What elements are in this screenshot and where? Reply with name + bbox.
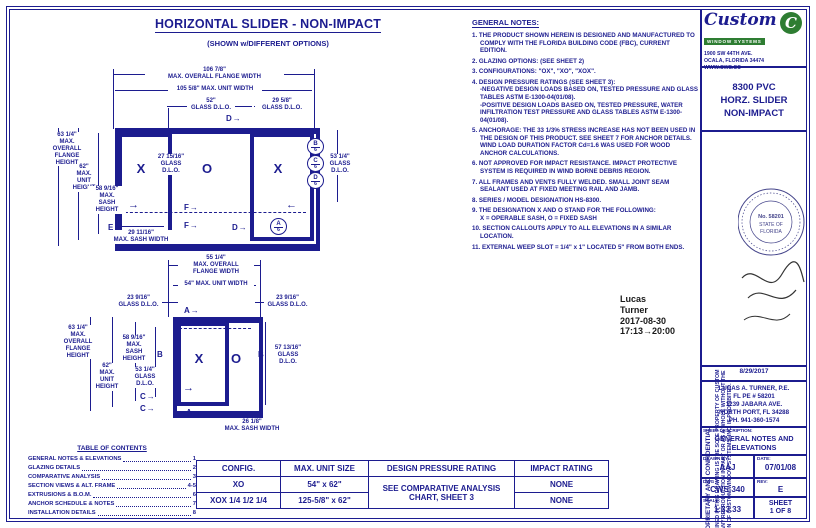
note-item: 2. GLAZING OPTIONS: (SEE SHEET 2) [472, 58, 698, 66]
col-header-size: MAX. UNIT SIZE [281, 461, 369, 477]
seal-region: FLORIDA [760, 229, 782, 235]
logo-mark-icon: C [780, 12, 802, 34]
cell-impact: NONE [515, 477, 609, 493]
slide-arrow-icon: ← [286, 200, 297, 211]
rev-value: E [755, 485, 806, 494]
notes-heading: GENERAL NOTES: [472, 18, 539, 28]
sheet-description: GENERAL NOTES AND ELEVATIONS [702, 434, 806, 452]
section-callout-e: E [108, 224, 113, 232]
toc-item: SECTION VIEWS & ALT. FRAME4-5 [28, 482, 196, 491]
drawn-by-value: AAJ [702, 463, 753, 472]
left-sash [118, 133, 172, 241]
col-header-dp: DESIGN PRESSURE RATING [369, 461, 515, 477]
cell-config: XOX 1/4 1/2 1/4 [197, 493, 281, 509]
arrow-right-icon: → [147, 392, 155, 401]
dwg-number-label: DWG #: [703, 479, 720, 484]
scale-value: 1:33.33 [702, 505, 753, 514]
toc-item: GENERAL NOTES & ELEVATIONS1 [28, 455, 196, 464]
dim-line [168, 260, 169, 317]
lite-label-x-right: X [262, 161, 294, 176]
digital-signature-note: Lucas Turner 2017-08-30 17:13→20:00 [620, 294, 675, 337]
dim-sash-width: 29 11/16" MAX. SASH WIDTH [100, 230, 182, 244]
dim-unit-width: 105 5/8" MAX. UNIT WIDTH [168, 86, 262, 93]
title-area: HORIZONTAL SLIDER - NON-IMPACT (SHOWN w/… [122, 15, 414, 51]
table-row: XO 54" x 62" SEE COMPARATIVE ANALYSIS CH… [197, 477, 609, 493]
arrow-right-icon: → [233, 114, 241, 123]
dwg-number-value: CWS-340 [702, 485, 753, 494]
dim-glass-right: 29 5/8" GLASS D.L.O. [255, 98, 309, 112]
section-bubble-b: B6 [307, 138, 324, 155]
arrow-right-icon: → [147, 404, 155, 413]
date-label: DATE: [757, 456, 771, 461]
section-callout-d-top: D→ [226, 115, 241, 123]
note-item: 1. THE PRODUCT SHOWN HEREIN IS DESIGNED … [472, 32, 698, 55]
dim-flange-height: 63 1/4" MAX. OVERALL FLANGE HEIGHT [50, 132, 84, 166]
page-subtitle: (SHOWN w/DIFFERENT OPTIONS) [207, 39, 329, 48]
dim-line [113, 69, 114, 129]
general-notes: GENERAL NOTES: 1. THE PRODUCT SHOWN HERE… [472, 12, 698, 254]
note-item: 9. THE DESIGNATION X AND O STAND FOR THE… [472, 207, 698, 222]
section-callout-b-right: B [258, 351, 264, 359]
weep-line [120, 212, 306, 213]
note-item: 6. NOT APPROVED FOR IMPACT RESISTANCE. I… [472, 160, 698, 175]
dim-sash-width: 26 1/8" MAX. SASH WIDTH [210, 419, 294, 433]
config-table-header-row: CONFIG. MAX. UNIT SIZE DESIGN PRESSURE R… [197, 461, 609, 477]
section-bubble-c: C6 [307, 155, 324, 172]
dim-flange-width: 55 1/4" MAX. OVERALL FLANGE WIDTH [178, 255, 254, 276]
engineer-info: LUCAS A. TURNER, P.E. FL PE # 58201 1239… [702, 385, 806, 425]
dim-unit-width: 54" MAX. UNIT WIDTH [178, 281, 254, 288]
arrow-right-icon: → [193, 408, 201, 417]
proprietary-body-strip: THE INFORMATION CONTAINED IN THIS DRAWIN… [716, 132, 740, 366]
note-item: 10. SECTION CALLOUTS APPLY TO ALL ELEVAT… [472, 225, 698, 240]
company-logo: Custom C WINDOW SYSTEMS 1900 SW 44TH AVE… [704, 12, 804, 72]
toc-title: TABLE OF CONTENTS [28, 445, 196, 452]
toc-item: INSTALLATION DETAILS8 [28, 509, 196, 518]
dim-line [265, 322, 266, 405]
section-bubble-a: A6 [270, 218, 287, 235]
dim-unit-height: 62" MAX. UNIT HEIGHT [92, 363, 122, 391]
seal-date: 8/29/2017 [702, 368, 806, 375]
cell-config: XO [197, 477, 281, 493]
logo-script-text: Custom [704, 10, 777, 30]
dim-line [112, 317, 113, 407]
col-header-impact: IMPACT RATING [515, 461, 609, 477]
dim-glass-height: 53 1/4" GLASS D.L.O. [321, 154, 359, 175]
date-value: 07/01/08 [755, 463, 806, 472]
signature-time: 17:13→20:00 [620, 326, 675, 337]
cell-impact: NONE [515, 493, 609, 509]
section-callout-a-top: A→ [184, 307, 199, 315]
signer-last-name: Turner [620, 305, 675, 316]
lite-label-x: X [181, 351, 217, 366]
sheet-number: 1 OF 8 [755, 508, 806, 515]
note-item: 8. SERIES / MODEL DESIGNATION HS-8300. [472, 197, 698, 205]
col-header-config: CONFIG. [197, 461, 281, 477]
dim-glass-right-top: 23 9/16" GLASS D.L.O. [264, 295, 311, 309]
section-callout-f2: F→ [184, 222, 198, 230]
toc-item: ANCHOR SCHEDULE & NOTES7 [28, 500, 196, 509]
lite-label-o: O [223, 351, 249, 366]
note-item: 3. CONFIGURATIONS: "OX", "XO", "XOX". [472, 68, 698, 76]
sheet-description-label: SHEET DESCRIPTION: [703, 428, 753, 433]
company-address: 1900 SW 44TH AVE. OCALA, FLORIDA 34474 W… [704, 51, 804, 72]
dim-glass-center: 52" GLASS D.L.O. [187, 98, 235, 112]
toc-item: EXTRUSIONS & B.O.M.6 [28, 491, 196, 500]
elevation-xox: 106 7/8" MAX. OVERALL FLANGE WIDTH 105 5… [40, 66, 370, 266]
page-title: HORIZONTAL SLIDER - NON-IMPACT [155, 17, 381, 33]
slide-arrow-icon: → [183, 383, 194, 394]
section-callout-c-upper: C→ [140, 393, 155, 401]
section-callout-a-bottom: A→ [186, 409, 201, 417]
seal-state: STATE OF [759, 222, 783, 228]
cell-size: 125-5/8" x 62" [281, 493, 369, 509]
logo-sub-text: WINDOW SYSTEMS [704, 38, 765, 45]
dim-sash-height: 58 9/16" MAX. SASH HEIGHT [115, 335, 153, 363]
seal-graphic: No. 58201 STATE OF FLORIDA [738, 170, 810, 360]
rev-label: REV: [757, 479, 768, 484]
toc-item: COMPARATIVE ANALYSIS3 [28, 473, 196, 482]
section-callout-c-lower: C→ [140, 405, 155, 413]
elevation-xo: 55 1/4" MAX. OVERALL FLANGE WIDTH 54" MA… [60, 255, 320, 450]
cell-dp-rating: SEE COMPARATIVE ANALYSIS CHART, SHEET 3 [369, 477, 515, 509]
dim-glass-x: 27 15/16" GLASS D.L.O. [148, 154, 194, 175]
sash-travel-line [179, 328, 251, 329]
arrow-right-icon: → [191, 306, 199, 315]
dim-flange-width: 106 7/8" MAX. OVERALL FLANGE WIDTH [145, 67, 284, 81]
dim-flange-height: 63 1/4" MAX. OVERALL FLANGE HEIGHT [60, 325, 96, 359]
sheet-word: SHEET [755, 500, 806, 507]
dim-line [160, 302, 178, 303]
pe-seal: No. 58201 STATE OF FLORIDA [738, 170, 810, 360]
slide-arrow-icon: → [128, 200, 139, 211]
note-item: 7. ALL FRAMES AND VENTS FULLY WELDED. SM… [472, 179, 698, 194]
dim-glass-left: 23 9/16" GLASS D.L.O. [115, 295, 162, 309]
signer-first-name: Lucas [620, 294, 675, 305]
section-callout-d-bottom: D→ [232, 224, 247, 232]
drawn-by-label: DRAWN BY: [703, 456, 729, 461]
handwritten-signature [742, 262, 804, 299]
dim-sash-height: 58 9/16" MAX. SASH HEIGHT [88, 186, 126, 214]
dim-line [314, 69, 315, 129]
dim-line [260, 260, 261, 317]
note-item: 5. ANCHORAGE: THE 33 1/3% STRESS INCREAS… [472, 127, 698, 157]
arrow-right-icon: → [190, 203, 198, 212]
signature-date: 2017-08-30 [620, 316, 675, 327]
section-callout-f1: F→ [184, 204, 198, 212]
toc-item: GLAZING DETAILS2 [28, 464, 196, 473]
note-item: 11. EXTERNAL WEEP SLOT = 1/4" x 1" LOCAT… [472, 244, 698, 252]
dim-glass-right: 57 13/16" GLASS D.L.O. [268, 345, 308, 366]
dim-glass-height: 53 1/4" GLASS D.L.O. [128, 367, 162, 388]
dim-line [98, 133, 99, 234]
arrow-right-icon: → [190, 221, 198, 230]
section-bubble-d: D6 [307, 172, 324, 189]
seal-license: No. 58201 [758, 214, 784, 220]
arrow-right-icon: → [239, 223, 247, 232]
product-name: 8300 PVC HORZ. SLIDER NON-IMPACT [702, 82, 806, 120]
table-of-contents: TABLE OF CONTENTS GENERAL NOTES & ELEVAT… [28, 445, 196, 518]
scale-label: SCALE: [703, 498, 720, 503]
note-item: 4. DESIGN PRESSURE RATINGS (SEE SHEET 3)… [472, 79, 698, 124]
proprietary-title-strip: PROPRIETARY AND CONFIDENTIAL [703, 132, 715, 366]
config-table: CONFIG. MAX. UNIT SIZE DESIGN PRESSURE R… [196, 460, 609, 509]
cell-size: 54" x 62" [281, 477, 369, 493]
dim-line [115, 226, 164, 227]
section-callout-b-left: B [157, 351, 163, 359]
handwritten-signature-2 [744, 314, 790, 320]
drawing-sheet: HORIZONTAL SLIDER - NON-IMPACT (SHOWN w/… [0, 0, 816, 528]
